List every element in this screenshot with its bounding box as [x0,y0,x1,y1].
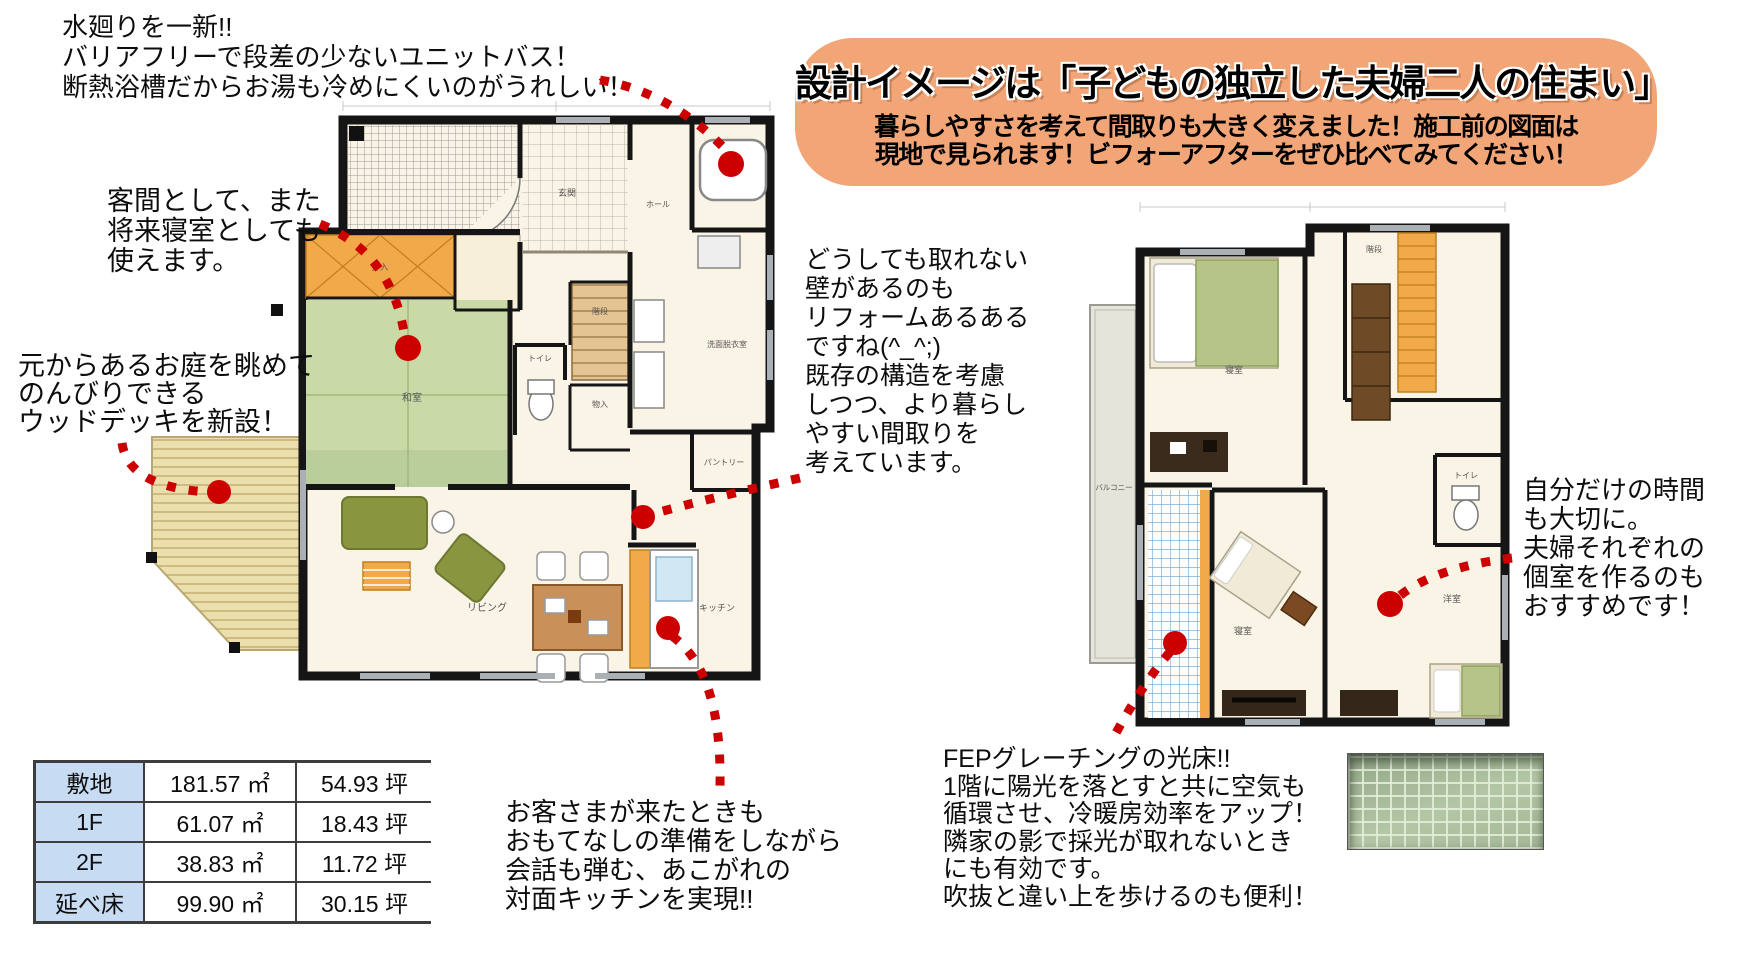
table-cell-m2: 38.83 ㎡ [145,843,295,881]
kitchen-counter [630,550,650,668]
banner-title: 設計イメージは「子どもの独立した夫婦二人の住まい」 [795,53,1657,107]
title-banner: 設計イメージは「子どもの独立した夫婦二人の住まい」 暮らしやすさを考えて間取りも… [795,38,1657,186]
stairs-2f [1398,233,1436,392]
toilet-2f [1454,500,1478,530]
annotation-existing-wall: どうしても取れない 壁があるのも リフォームあるある ですね(^_^;) 既存の… [805,246,1029,478]
table-cell-tsubo: 11.72 坪 [297,843,432,881]
area-table: 敷地 181.57 ㎡ 54.93 坪 1F 61.07 ㎡ 18.43 坪 2… [33,760,431,924]
room-label-genkan: 玄関 [558,187,576,198]
stairs-1f [572,282,628,380]
room-label-western: 洋室 [1443,593,1461,604]
bathtub [700,140,766,200]
annotation-unit-bath: 水廻りを一新!! バリアフリーで段差の少ないユニットバス！ 断熱浴槽だからお湯も… [62,12,633,102]
room-label-bedroom1: 寝室 [1225,364,1243,375]
table-row-label: 敷地 [36,763,143,801]
annotation-fep-grating: FEPグレーチングの光床!! 1階に陽光を落とすと共に空気も 循環させ、冷暖房効… [943,746,1318,911]
table-cell-m2: 99.90 ㎡ [145,883,295,921]
room-label-living: リビング [467,601,507,614]
table-row-label: 延べ床 [36,883,143,921]
annotation-wood-deck: 元からあるお庭を眺めて のんびりできる ウッドデッキを新設！ [18,352,315,436]
table-cell-tsubo: 30.15 坪 [297,883,432,921]
room-label-closet: 押入 [371,262,389,272]
table-cell-tsubo: 18.43 坪 [297,803,432,841]
room-label-hall: ホール [646,200,670,209]
room-label-kitchen: キッチン [699,603,735,613]
table-cell-m2: 61.07 ㎡ [145,803,295,841]
room-label-storage: 物入 [592,399,608,409]
genkan-tile [522,124,628,250]
annotation-private-rooms: 自分だけの時間 も大切に。 夫婦それぞれの 個室を作るのも おすすめです！ [1523,476,1705,621]
banner-subtitle: 暮らしやすさを考えて間取りも大きく変えました！施工前の図面は 現地で見られます！… [795,113,1657,169]
tv-console [1222,690,1306,716]
table-row-label: 1F [36,803,143,841]
room-label-bedroom2: 寝室 [1234,625,1252,636]
fep-grating-photo [1347,753,1544,850]
kitchen-sink [656,557,692,601]
fep-light-floor [1148,490,1200,718]
table-cell-tsubo: 54.93 坪 [297,763,432,801]
room-label-stairs: 階段 [592,306,608,316]
room-label-stairs-2f: 階段 [1366,244,1382,254]
sofa [342,497,427,549]
annotation-guest-room: 客間として、また 将来寝室としても 使えます。 [107,186,321,276]
table-cell-m2: 181.57 ㎡ [145,763,295,801]
dresser [1340,690,1398,716]
wood-deck [152,437,303,650]
room-label-toilet: トイレ [528,354,552,363]
ottoman [363,562,410,590]
floor-plan-2f: 寝室 バルコニー トイレ 階段 寝室 洋室 [1080,195,1530,740]
annotation-open-kitchen: お客さまが来たときも おもてなしの準備をしながら 会話も弾む、あこがれの 対面キ… [505,798,842,914]
room-label-tatami: 和室 [402,391,422,404]
flyer-page: 玄関 ホール 階段 洗面脱衣室 トイレ 物入 押入 和室 パントリー リビング … [0,0,1743,958]
room-label-washroom: 洗面脱衣室 [707,339,747,349]
room-label-pantry: パントリー [704,458,744,467]
table-row-label: 2F [36,843,143,881]
room-label-toilet-2f: トイレ [1454,471,1478,480]
room-label-balcony: バルコニー [1095,483,1132,492]
